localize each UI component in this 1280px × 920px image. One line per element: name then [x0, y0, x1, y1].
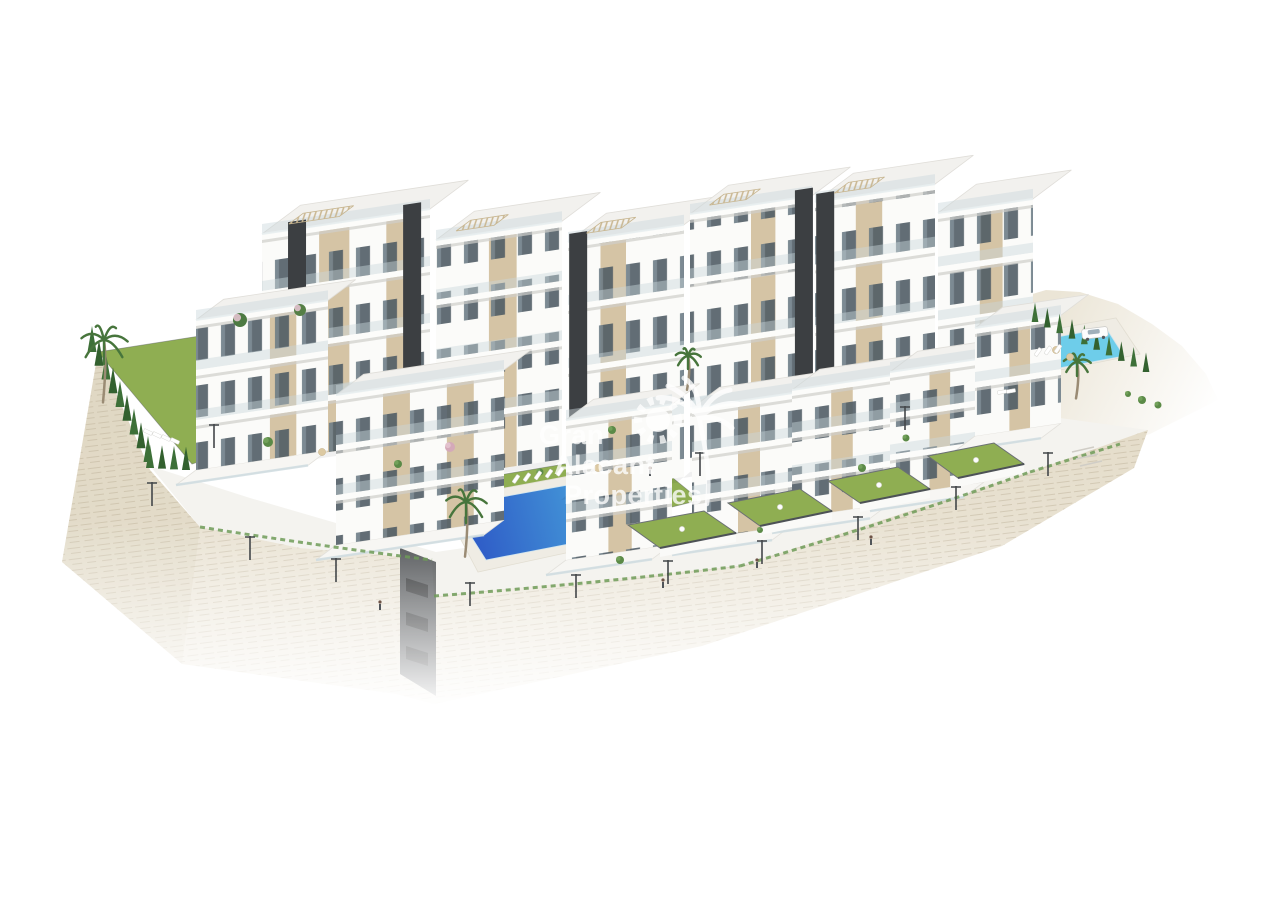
shrub	[1125, 391, 1131, 397]
shrub	[616, 556, 624, 564]
shrub	[757, 527, 763, 533]
parking-entrance-structure	[400, 548, 436, 696]
shrub	[608, 426, 616, 434]
watermark-line-1: Gran	[539, 420, 604, 450]
watermark-line-2: Alacant	[554, 450, 655, 480]
shrub	[858, 464, 866, 472]
shrub	[233, 313, 247, 327]
shrub	[1138, 396, 1146, 404]
shrub	[1155, 402, 1162, 409]
property-render-page: Gran Alacant Properties	[0, 0, 1280, 920]
property-3d-render: Gran Alacant Properties	[0, 0, 1280, 920]
parasol	[318, 448, 325, 455]
shrub	[294, 304, 306, 316]
parasol	[1066, 353, 1073, 360]
shrub	[903, 435, 910, 442]
shrub	[263, 437, 273, 447]
watermark-line-3: Properties	[564, 480, 703, 510]
shrub	[445, 442, 455, 452]
shrub	[394, 460, 402, 468]
